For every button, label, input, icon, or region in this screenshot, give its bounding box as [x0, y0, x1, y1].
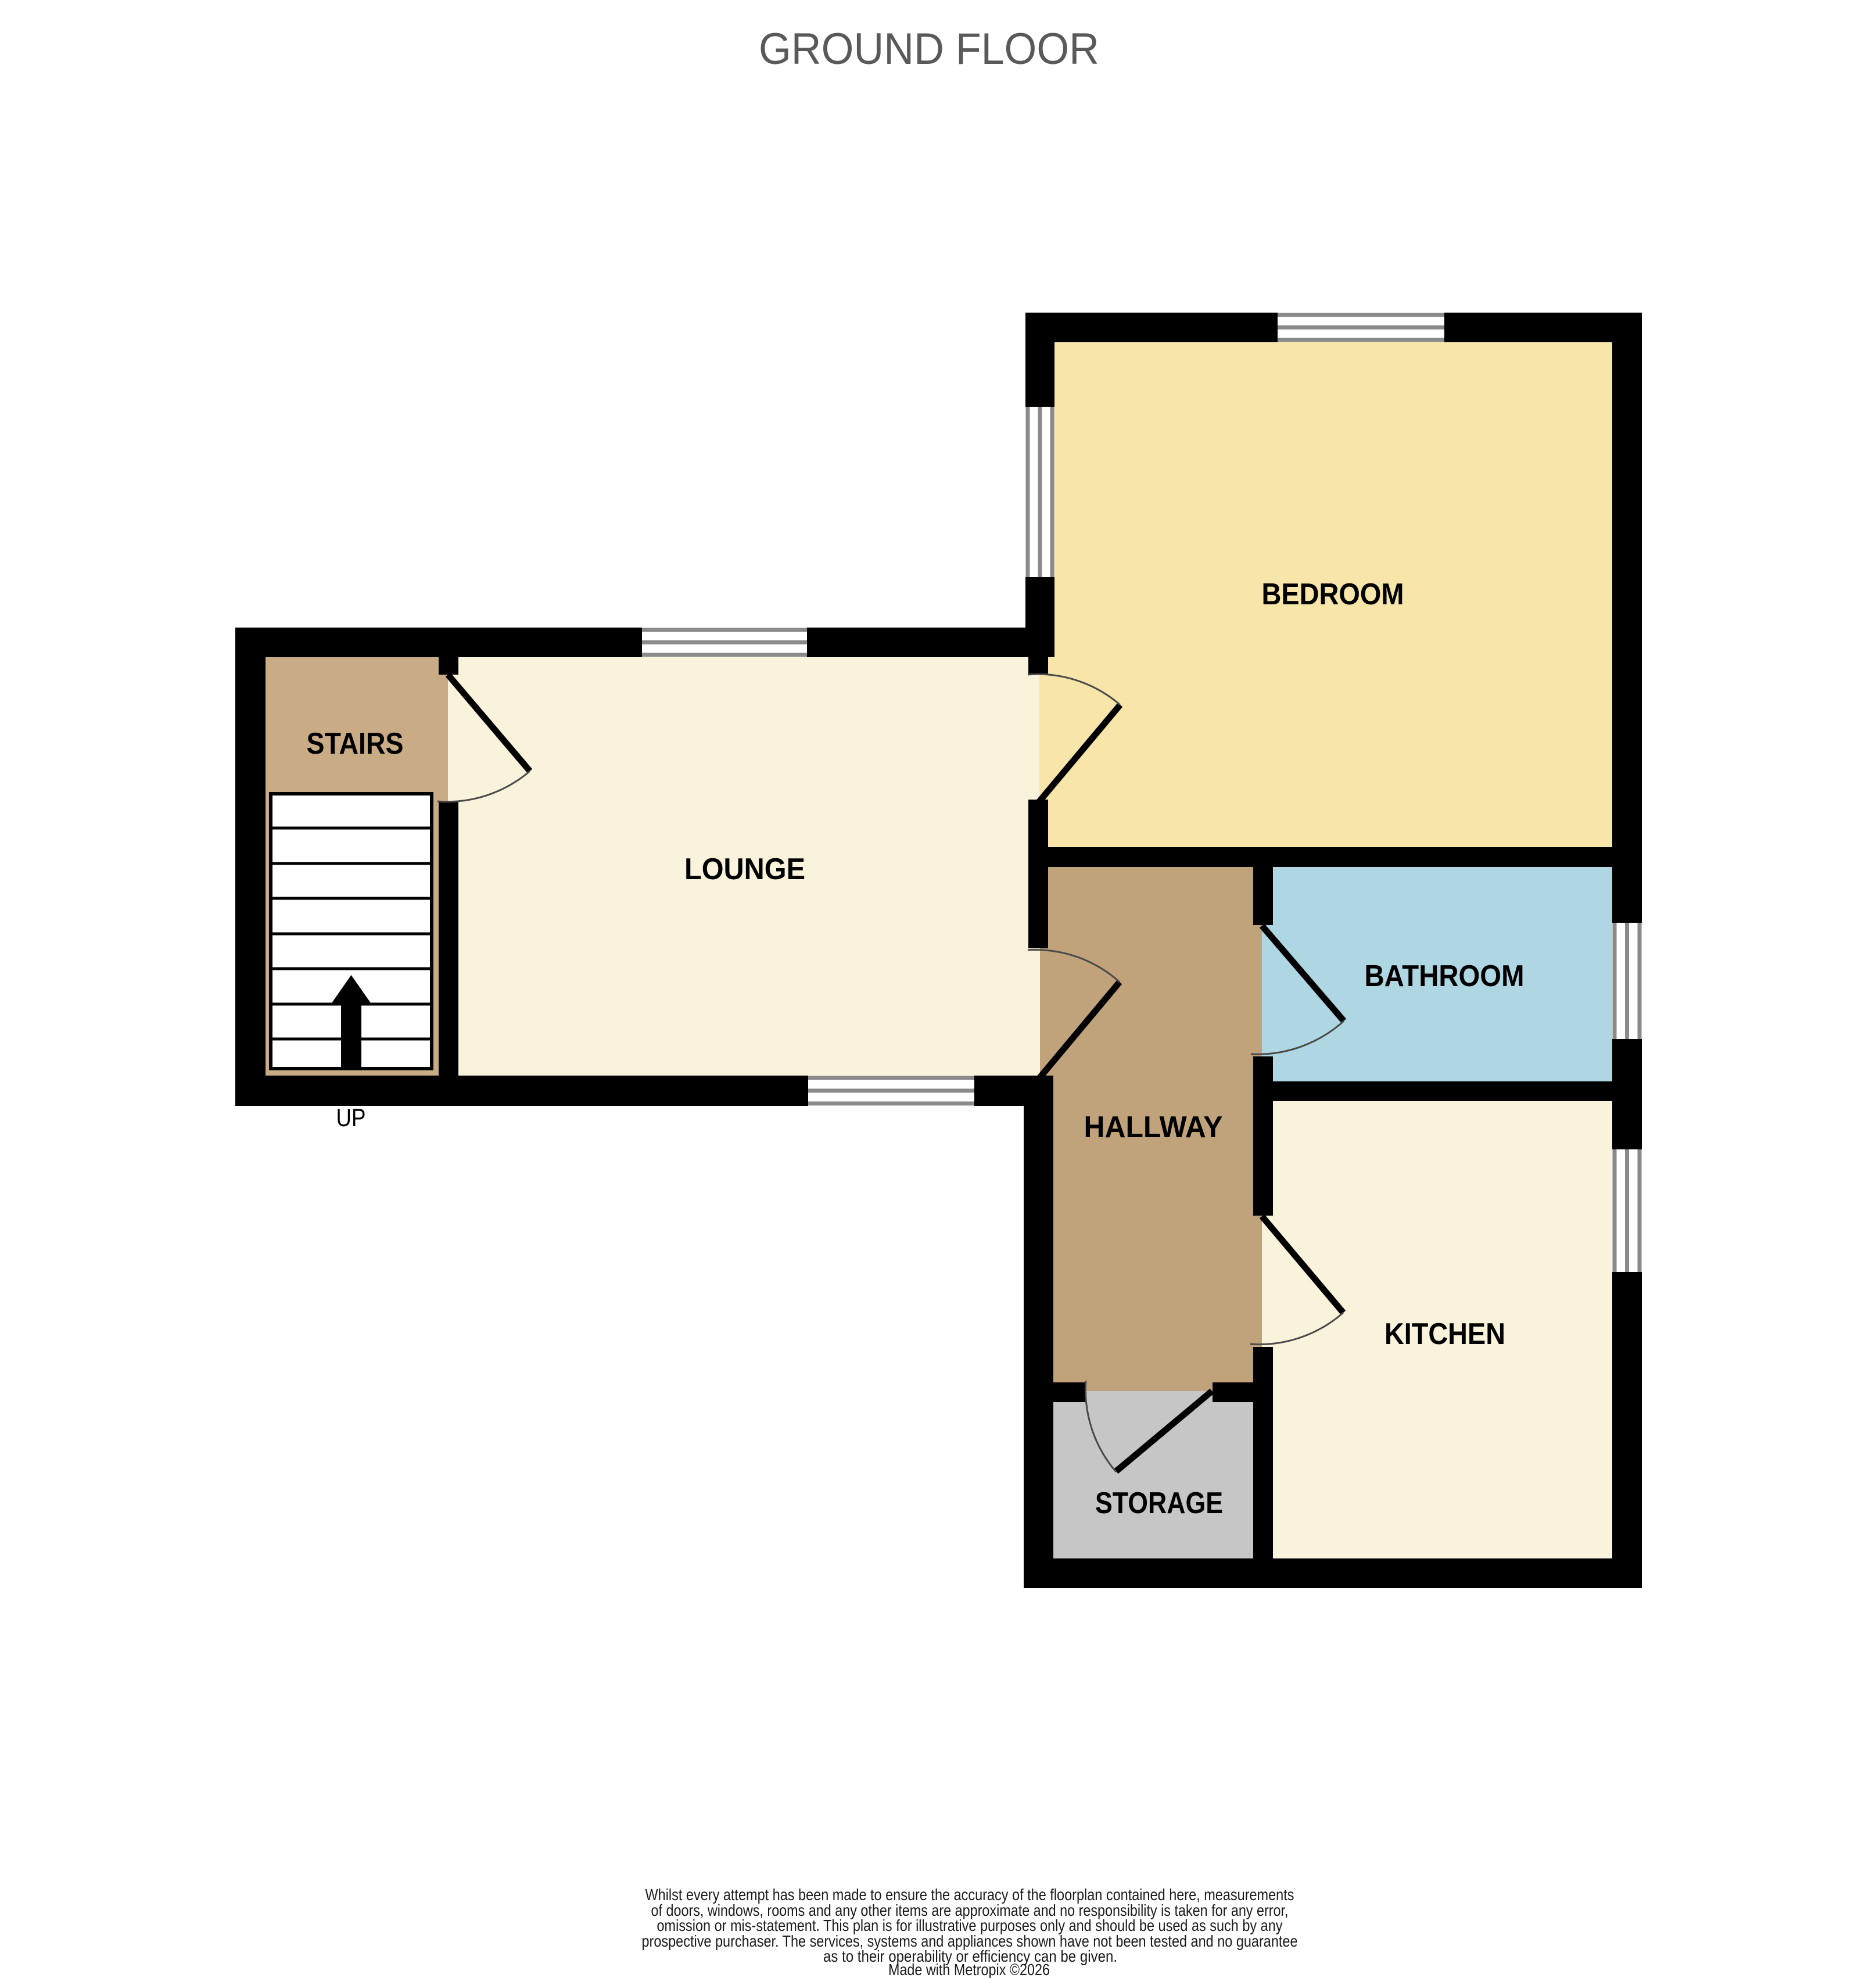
- svg-text:LOUNGE: LOUNGE: [684, 852, 805, 886]
- svg-text:GROUND FLOOR: GROUND FLOOR: [759, 24, 1099, 74]
- svg-text:STAIRS: STAIRS: [307, 727, 404, 761]
- svg-text:HALLWAY: HALLWAY: [1084, 1110, 1223, 1144]
- svg-text:BEDROOM: BEDROOM: [1262, 578, 1404, 611]
- svg-text:KITCHEN: KITCHEN: [1384, 1317, 1505, 1351]
- svg-text:STORAGE: STORAGE: [1095, 1486, 1223, 1520]
- svg-text:BATHROOM: BATHROOM: [1365, 959, 1525, 993]
- svg-text:UP: UP: [336, 1104, 366, 1132]
- svg-text:Made with Metropix ©2026: Made with Metropix ©2026: [888, 1961, 1050, 1978]
